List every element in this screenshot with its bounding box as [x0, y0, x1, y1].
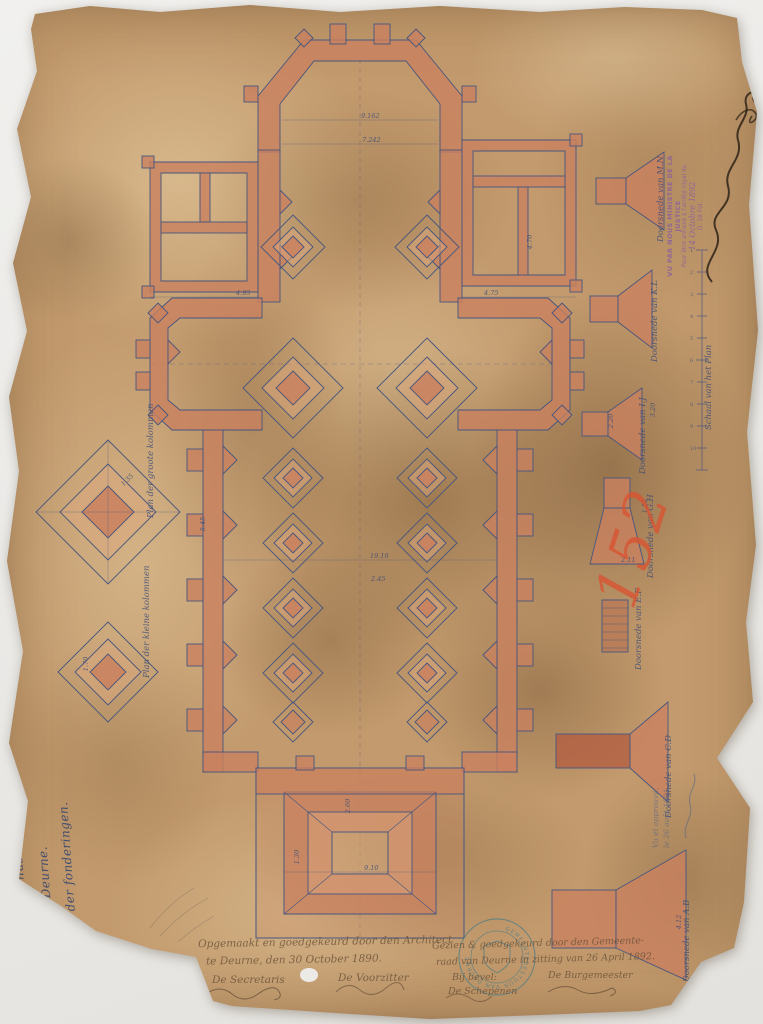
pier-diamond-small [407, 702, 447, 742]
dimension-label: 4.12 [675, 915, 683, 929]
dimension-label: 3.20 [649, 403, 657, 417]
corner-note-line1: Vu et approuvé, [650, 723, 661, 848]
commission-signature [685, 774, 695, 838]
chairman-signature [336, 982, 404, 994]
dimension-label: 9.162 [361, 112, 380, 120]
scale-tick-number: 3 [690, 292, 693, 298]
plan-linework [36, 24, 708, 980]
commission-corner-note: Vu et approuvé, le 26 août 1891. [650, 723, 673, 848]
right-annex [462, 134, 582, 292]
caption-section-AB: Doorsnede van A.B [682, 900, 692, 982]
minister-signature [707, 92, 761, 282]
scale-tick-number: 10 [690, 446, 696, 452]
aged-paper-sheet: GEMEENTEBESTUUR VAN DEURNE K [0, 0, 763, 1024]
pier-diamond [397, 643, 457, 703]
section-MN [596, 152, 664, 230]
justice-stamp-folio: D. 18 Fol. [697, 140, 704, 292]
dimension-label: 5.45 [199, 517, 207, 531]
scanned-drawing-stage: GEMEENTEBESTUUR VAN DEURNE K [0, 0, 763, 1024]
pier-diamond [263, 578, 323, 638]
dimension-label: 7.242 [362, 136, 381, 144]
detail-large-column-plan [36, 440, 180, 584]
secretary-signature [206, 988, 280, 1000]
pier-diamond [263, 448, 323, 508]
pier-diamond [397, 578, 457, 638]
scale-tick-number: 4 [690, 314, 693, 320]
justice-stamp-line1: VU PAR NOUS MINISTRE DE LA JUSTICE [666, 140, 682, 292]
scale-tick-number: 8 [690, 402, 693, 408]
dimension-label: 19.10 [370, 552, 389, 560]
justice-ministry-stamp: VU PAR NOUS MINISTRE DE LA JUSTICE Pour … [666, 140, 704, 292]
section-KL [590, 270, 652, 348]
scale-tick-number: 7 [690, 380, 693, 386]
dimension-label: 4.75 [484, 289, 498, 297]
secretary-label: De Secretaris [212, 974, 285, 986]
pier-diamond [263, 643, 323, 703]
caption-section-IJ: Doorsnede van I.J [638, 397, 648, 474]
dimension-label: 1.70 [82, 657, 90, 671]
scale-tick-number: 5 [690, 336, 693, 342]
justice-stamp-date: 14 Octobre 1892 [688, 140, 697, 292]
dimension-label: 2.45 [371, 575, 385, 583]
mayor-label: De Burgemeester [548, 970, 633, 981]
chairman-label: De Voorzitter [338, 972, 409, 984]
dimension-label: 9.10 [364, 864, 378, 872]
dimension-label: 4.95 [236, 289, 250, 297]
caption-section-MN: Doorsnede van M.N [656, 156, 666, 242]
caption-section-KL: Doorsnede van K.L [650, 280, 660, 362]
dimension-label: 1.30 [293, 850, 301, 864]
caption-large-columns: Plan der groote kolommen [146, 403, 156, 518]
mayor-signature [548, 986, 616, 996]
pier-diamond [397, 448, 457, 508]
left-annex [142, 156, 258, 298]
dimension-label: 4.70 [526, 235, 534, 249]
dimension-label: 2.60 [344, 799, 352, 813]
pier-diamond [263, 513, 323, 573]
by-order-label: Bij bevel: [452, 972, 497, 983]
paper-hole [300, 968, 318, 982]
pencil-notes [150, 888, 214, 942]
corner-note-line2: le 26 août 1891. [661, 723, 672, 848]
caption-small-columns: Plan der kleine kolommen [142, 566, 152, 678]
scale-bar-label: Schaal van het Plan [704, 345, 714, 430]
tower-foundation [256, 756, 464, 938]
aldermen-label: De Schepenen [448, 986, 517, 997]
pier-diamond [397, 513, 457, 573]
scale-tick-number: 6 [690, 358, 693, 364]
pier-diamond-small [273, 702, 313, 742]
dimension-label: 2.20 [607, 414, 615, 428]
scale-tick-number: 9 [690, 424, 693, 430]
paper-sheet-wrap: GEMEENTEBESTUUR VAN DEURNE K [0, 0, 763, 1024]
